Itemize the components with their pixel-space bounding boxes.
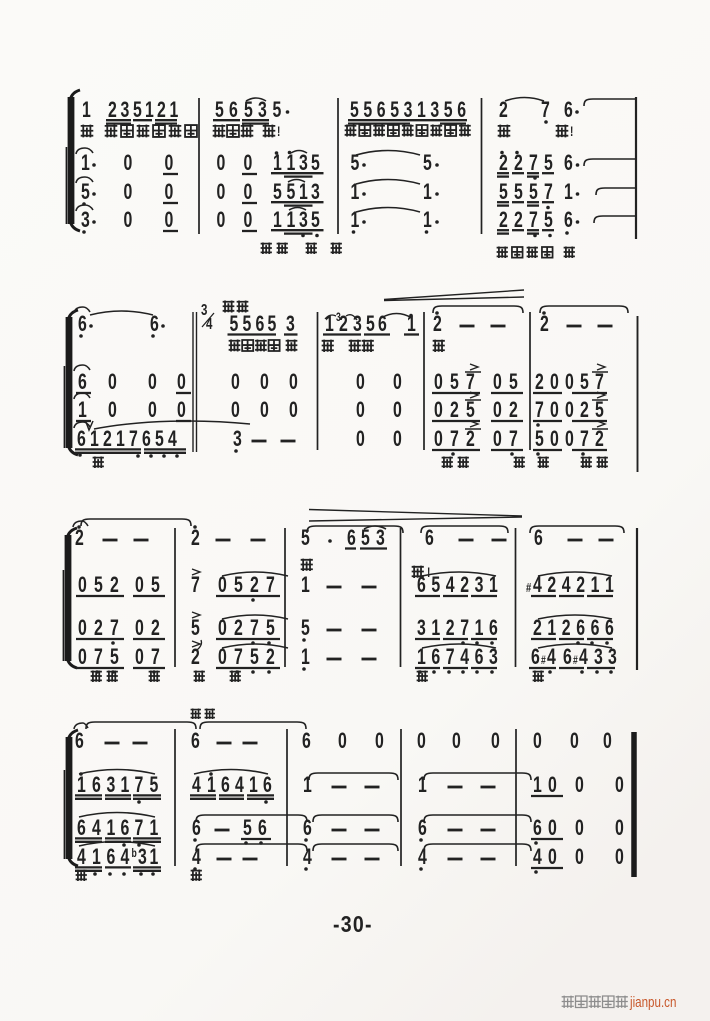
svg-text:0: 0 (124, 181, 133, 205)
svg-text:#: # (541, 655, 546, 668)
svg-text:0: 0 (148, 371, 157, 395)
svg-text:0: 0 (491, 730, 500, 754)
svg-text:0: 0 (603, 730, 612, 754)
svg-text:0: 0 (243, 209, 252, 233)
svg-text:5: 5 (361, 527, 370, 551)
svg-text:!: ! (277, 123, 280, 139)
svg-text:2: 2 (499, 99, 508, 123)
svg-text:jianpu.cn: jianpu.cn (629, 994, 676, 1011)
svg-text:0: 0 (356, 428, 365, 452)
svg-text:4: 4 (303, 846, 312, 870)
svg-text:3: 3 (81, 209, 90, 233)
svg-text:4: 4 (579, 646, 588, 670)
svg-text:027: 027 (78, 617, 119, 641)
svg-text:052: 052 (78, 574, 119, 598)
svg-text:4: 4 (418, 846, 427, 870)
svg-text:0: 0 (417, 730, 426, 754)
svg-text:0: 0 (615, 774, 624, 798)
svg-text:0: 0 (231, 399, 240, 423)
svg-text:6: 6 (534, 527, 543, 551)
svg-text:0: 0 (164, 152, 173, 176)
svg-text:6: 6 (302, 730, 311, 754)
svg-text:1: 1 (303, 774, 312, 798)
svg-text:3: 3 (608, 646, 617, 670)
svg-text:0: 0 (356, 371, 365, 395)
svg-text:0: 0 (570, 730, 579, 754)
svg-text:b: b (132, 848, 137, 861)
svg-text:#: # (573, 655, 578, 668)
svg-text:0: 0 (164, 181, 173, 205)
svg-text:6: 6 (347, 527, 356, 551)
svg-text:6: 6 (75, 730, 84, 754)
svg-text:0: 0 (260, 371, 269, 395)
svg-text:3: 3 (336, 312, 341, 325)
svg-text:#: # (526, 582, 532, 596)
svg-text:1: 1 (78, 399, 87, 423)
svg-text:!: ! (427, 564, 430, 580)
svg-text:0: 0 (575, 774, 584, 798)
svg-text:-30-: -30- (333, 912, 373, 938)
svg-text:7: 7 (541, 99, 550, 123)
svg-text:5: 5 (81, 181, 90, 205)
svg-text:0: 0 (231, 371, 240, 395)
svg-text:0: 0 (356, 399, 365, 423)
svg-text:1: 1 (82, 99, 91, 123)
svg-text:1: 1 (301, 574, 310, 598)
svg-text:3: 3 (233, 428, 242, 452)
svg-text:1: 1 (351, 181, 360, 205)
svg-text:0: 0 (124, 152, 133, 176)
svg-text:!: ! (570, 123, 573, 139)
svg-text:0: 0 (393, 371, 402, 395)
svg-text:0: 0 (177, 371, 186, 395)
svg-text:0: 0 (452, 730, 461, 754)
svg-text:2: 2 (191, 527, 200, 551)
svg-text:0: 0 (243, 181, 252, 205)
svg-text:0: 0 (260, 399, 269, 423)
svg-text:5: 5 (351, 152, 360, 176)
svg-text:0: 0 (148, 399, 157, 423)
svg-text:1: 1 (81, 152, 90, 176)
svg-text:5: 5 (191, 617, 200, 641)
svg-text:6: 6 (564, 99, 573, 123)
svg-text:6: 6 (418, 817, 427, 841)
svg-text:0: 0 (393, 399, 402, 423)
svg-text:057: 057 (434, 371, 475, 395)
svg-text:0: 0 (108, 399, 117, 423)
svg-text:0: 0 (615, 846, 624, 870)
svg-text:6: 6 (78, 313, 87, 337)
svg-text:3: 3 (376, 527, 385, 551)
svg-text:0: 0 (216, 181, 225, 205)
svg-text:1: 1 (423, 209, 432, 233)
svg-text:6: 6 (564, 209, 573, 233)
svg-text:7: 7 (191, 574, 200, 598)
svg-text:0: 0 (124, 209, 133, 233)
svg-text:4: 4 (547, 646, 556, 670)
svg-text:0: 0 (338, 730, 347, 754)
svg-text:2: 2 (75, 527, 84, 551)
svg-text:1: 1 (423, 181, 432, 205)
svg-text:0: 0 (289, 399, 298, 423)
svg-text:025: 025 (434, 399, 475, 423)
svg-text:0: 0 (243, 152, 252, 176)
svg-text:1: 1 (564, 181, 573, 205)
svg-text:5: 5 (423, 152, 432, 176)
svg-text:0: 0 (108, 371, 117, 395)
svg-text:6: 6 (78, 371, 87, 395)
svg-text:6: 6 (563, 646, 572, 670)
svg-text:2: 2 (433, 313, 442, 337)
svg-text:4: 4 (206, 314, 213, 332)
svg-text:0: 0 (533, 730, 542, 754)
svg-text:2: 2 (540, 313, 549, 337)
svg-text:0: 0 (216, 152, 225, 176)
svg-text:0: 0 (375, 730, 384, 754)
svg-text:6: 6 (191, 730, 200, 754)
svg-text:1: 1 (351, 209, 360, 233)
svg-text:6: 6 (303, 817, 312, 841)
svg-text:0: 0 (164, 209, 173, 233)
svg-text:072: 072 (434, 428, 475, 452)
svg-text:3: 3 (594, 646, 603, 670)
svg-text:6: 6 (531, 646, 540, 670)
svg-text:6: 6 (425, 527, 434, 551)
svg-text:3: 3 (286, 313, 295, 337)
svg-text:0: 0 (393, 428, 402, 452)
svg-text:075: 075 (78, 646, 119, 670)
svg-text:5: 5 (301, 617, 310, 641)
svg-text:6: 6 (150, 313, 159, 337)
svg-text:0: 0 (575, 846, 584, 870)
svg-text:0: 0 (289, 371, 298, 395)
svg-text:0: 0 (615, 817, 624, 841)
svg-text:1: 1 (301, 646, 310, 670)
svg-text:5: 5 (301, 527, 310, 551)
svg-text:6: 6 (564, 152, 573, 176)
svg-text:0: 0 (177, 399, 186, 423)
svg-text:0: 0 (575, 817, 584, 841)
svg-text:1: 1 (418, 774, 427, 798)
svg-text:0: 0 (216, 209, 225, 233)
